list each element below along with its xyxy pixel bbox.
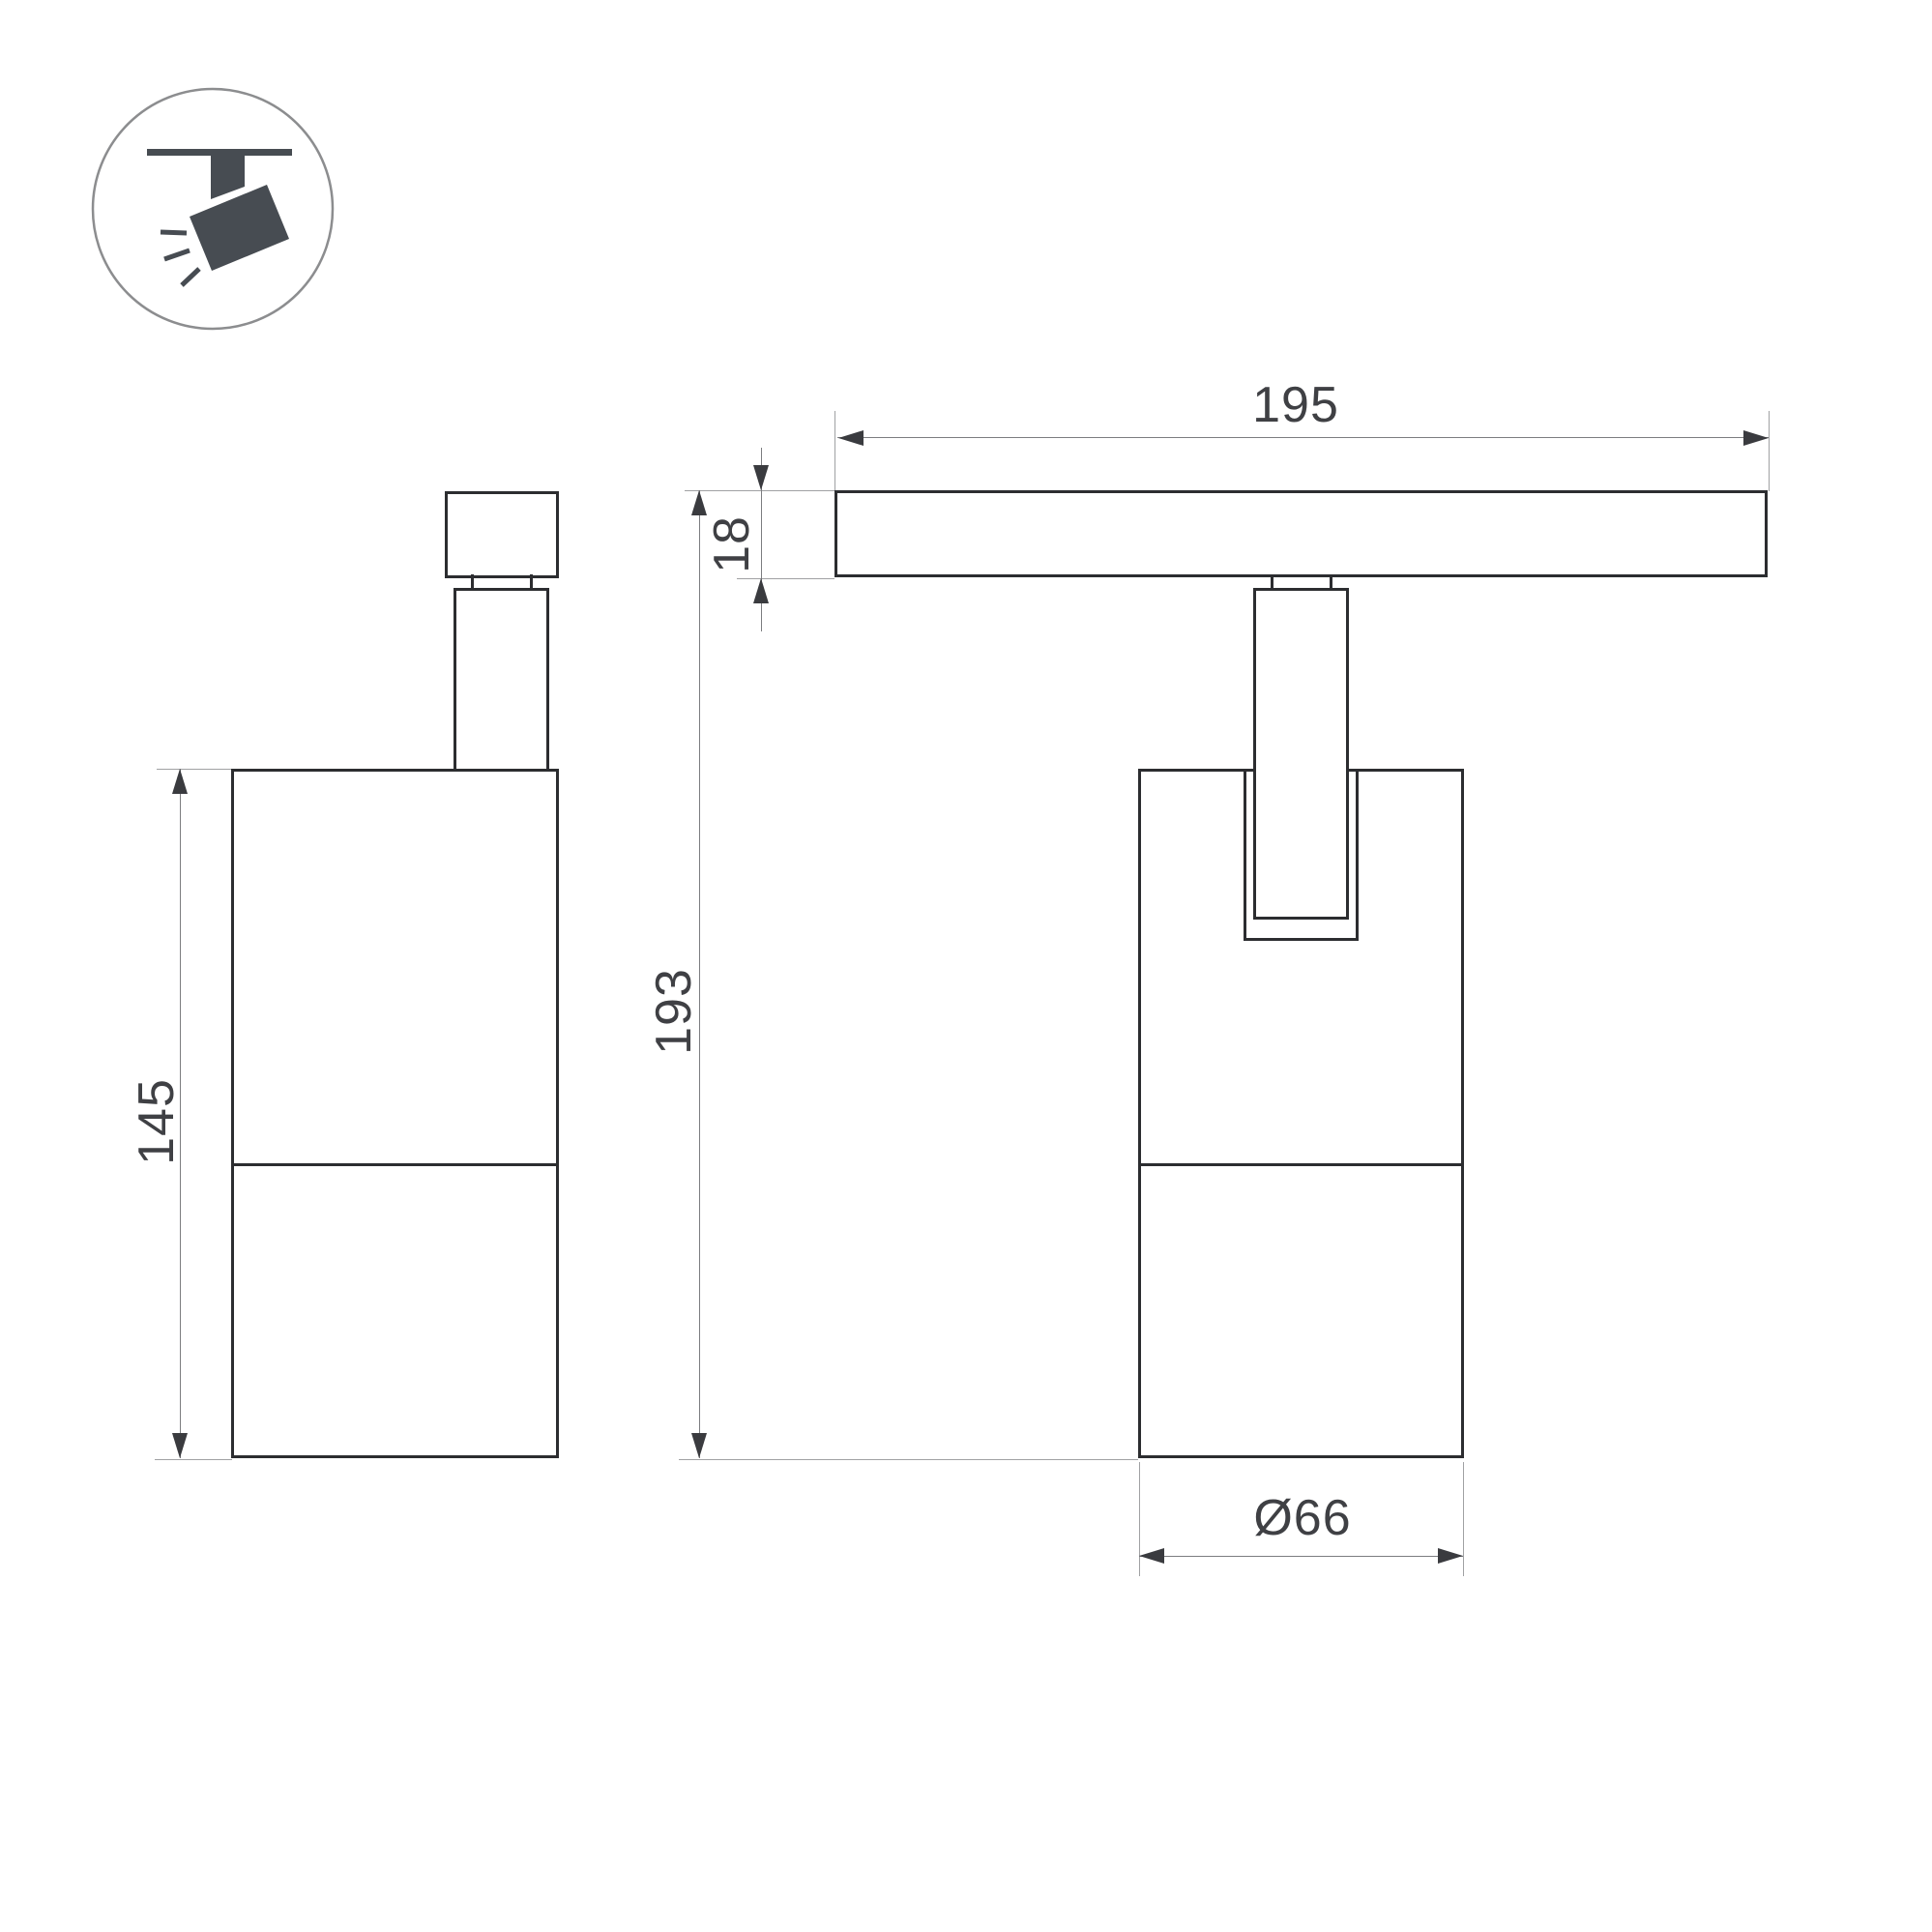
dim-line xyxy=(1139,1556,1463,1557)
dim-extension-line xyxy=(155,1459,232,1460)
arrowhead-right-icon xyxy=(1743,430,1769,446)
dim-extension-line xyxy=(1769,411,1770,491)
arrowhead-left-icon xyxy=(1139,1548,1164,1564)
front-body-divider xyxy=(1138,1163,1464,1166)
arrowhead-up-icon xyxy=(691,490,707,515)
dim-extension-line xyxy=(685,490,834,491)
front-track-rail xyxy=(834,490,1768,577)
dim-extension-line xyxy=(737,578,834,579)
arrowhead-down-icon xyxy=(172,1433,188,1458)
arrowhead-down-icon xyxy=(691,1433,707,1458)
side-lamp-body xyxy=(231,769,559,1458)
drawing-canvas: 195 18 193 145 Ø66 xyxy=(0,0,1932,1932)
dim-extension-line xyxy=(157,769,231,770)
arrowhead-up-icon xyxy=(172,769,188,794)
side-stem xyxy=(454,588,549,769)
dim-label-track-height: 18 xyxy=(703,515,761,573)
dim-line xyxy=(837,437,1769,438)
arrowhead-right-icon xyxy=(1438,1548,1463,1564)
track-spotlight-icon xyxy=(73,69,353,349)
dim-extension-line xyxy=(834,411,835,491)
dim-label-body-diameter: Ø66 xyxy=(1253,1489,1351,1547)
front-yoke-stem xyxy=(1253,588,1349,920)
dim-label-track-length: 195 xyxy=(1252,376,1339,434)
side-body-divider xyxy=(231,1163,559,1166)
dim-extension-line xyxy=(679,1459,1138,1460)
arrowhead-left-icon xyxy=(838,430,864,446)
side-adapter-box xyxy=(445,491,559,578)
arrowhead-down-icon xyxy=(753,465,769,490)
front-neck xyxy=(1271,574,1332,591)
dim-extension-line xyxy=(1463,1462,1464,1576)
dim-label-body-height: 145 xyxy=(128,1078,186,1165)
dim-label-total-height: 193 xyxy=(645,968,703,1055)
arrowhead-up-icon xyxy=(753,578,769,603)
